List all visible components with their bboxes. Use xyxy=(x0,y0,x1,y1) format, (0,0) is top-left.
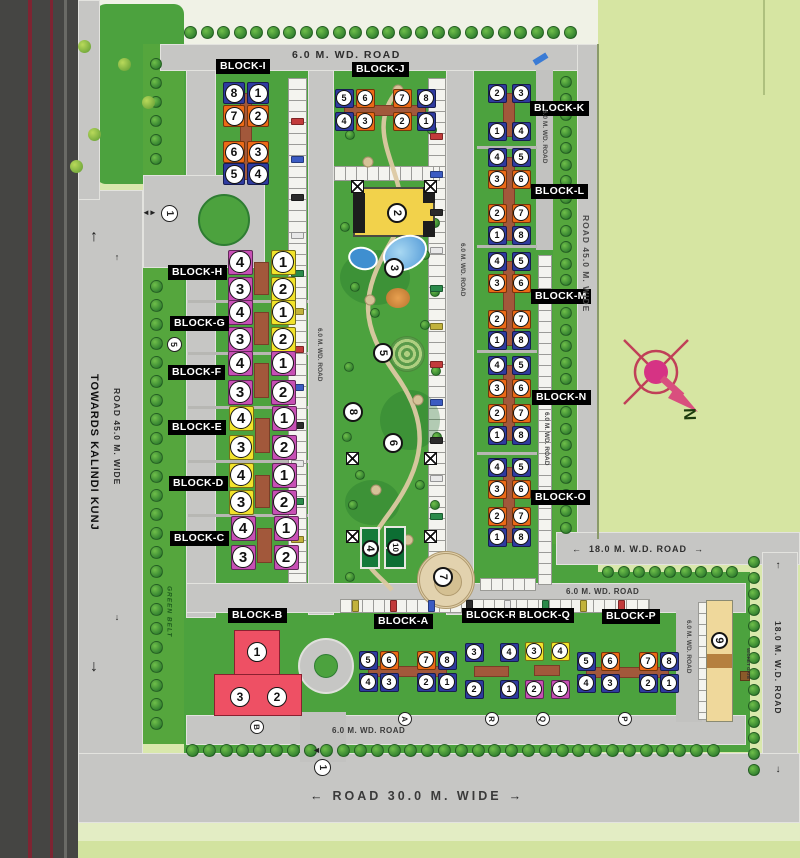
block-d-core xyxy=(255,475,270,508)
block-r-core xyxy=(474,666,509,677)
tree-icon xyxy=(748,588,760,600)
unit-circle-l-1: 1 xyxy=(489,227,505,243)
unit-circle-p-4: 4 xyxy=(578,675,594,691)
west-roundabout-island xyxy=(198,194,250,246)
unit-circle-d-4: 4 xyxy=(230,464,252,486)
bottom-margin-band-1 xyxy=(78,822,800,841)
site-plan-map: 6.0 M. WD. ROAD ↑ TOWARDS KALINDI KUNJ ↓… xyxy=(0,0,800,858)
unit-circle-g-4: 4 xyxy=(229,301,251,323)
unit-circle-l-2: 2 xyxy=(489,205,505,221)
tree-icon xyxy=(560,159,572,171)
utility-box-icon xyxy=(424,180,437,193)
tree-icon xyxy=(711,566,723,578)
unit-circle-p-6: 6 xyxy=(602,653,618,669)
unit-circle-j-2: 2 xyxy=(394,113,410,129)
knot-garden xyxy=(389,336,425,372)
unit-circle-a-1: 1 xyxy=(439,674,455,690)
road18-horizontal-label: ← 18.0 M. W.D. ROAD → xyxy=(572,544,704,554)
unit-circle-h-1: 1 xyxy=(272,251,294,273)
arrow-left-icon: ← xyxy=(310,789,326,803)
tree-icon xyxy=(690,744,703,757)
car-icon xyxy=(430,133,443,140)
block-label-e: BLOCK-E xyxy=(168,420,226,435)
tree-icon xyxy=(350,282,360,292)
wd6-near-p-text: 6.0 M. WD. ROAD xyxy=(685,620,692,673)
tree-icon xyxy=(355,470,365,480)
unit-circle-n-5: 5 xyxy=(513,357,529,373)
car-icon xyxy=(390,600,397,612)
block-label-j: BLOCK-J xyxy=(352,62,409,77)
unit-circle-p-8: 8 xyxy=(661,653,677,669)
tree-icon xyxy=(522,744,535,757)
arrow-right-icon: → xyxy=(509,789,525,803)
tree-icon xyxy=(283,26,296,39)
unit-circle-o-2: 2 xyxy=(489,508,505,524)
tree-icon xyxy=(560,258,572,270)
unit-circle-i-2: 2 xyxy=(249,107,268,126)
arrow-up-icon: ↑ xyxy=(776,560,781,571)
unit-circle-l-6: 6 xyxy=(513,171,529,187)
unit-circle-c-3: 3 xyxy=(232,546,254,568)
unit-circle-a-4: 4 xyxy=(360,674,376,690)
tree-icon xyxy=(560,373,572,385)
unit-circle-k-1: 1 xyxy=(489,123,505,139)
unit-circle-l-3: 3 xyxy=(489,171,505,187)
wicket-gate-text: WICKET GATE xyxy=(746,648,751,679)
unit-circle-g-2: 2 xyxy=(272,328,294,350)
road45-right-label: ROAD 45.0 M. WIDE xyxy=(578,215,594,420)
wd6-south-west-text: 6.0 M. WD. ROAD xyxy=(332,726,405,735)
unit-circle-b-2: 2 xyxy=(267,687,287,707)
tree-icon xyxy=(186,744,199,757)
tree-icon xyxy=(250,26,263,39)
unit-circle-f-1: 1 xyxy=(272,352,294,374)
tree-icon xyxy=(354,744,367,757)
unit-circle-c-1: 1 xyxy=(275,517,297,539)
bush-icon xyxy=(70,160,83,173)
car-icon xyxy=(430,361,443,368)
unit-circle-l-5: 5 xyxy=(513,149,529,165)
tree-icon xyxy=(481,26,494,39)
arrow-right-icon: → xyxy=(694,544,704,554)
car-icon xyxy=(352,600,359,612)
wd6-near-k-text: 6.0 M. WD. ROAD xyxy=(541,110,548,163)
tree-icon xyxy=(399,26,412,39)
unit-circle-e-4: 4 xyxy=(230,407,252,429)
wd6-near-k-label: 6.0 M. WD. ROAD xyxy=(538,110,551,194)
arrow-down-icon: ↓ xyxy=(776,764,781,775)
tree-icon xyxy=(664,566,676,578)
tree-icon xyxy=(726,566,738,578)
car-icon xyxy=(430,323,443,330)
tree-icon xyxy=(618,566,630,578)
unit-circle-p-3: 3 xyxy=(602,675,618,691)
unit-circle-n-3: 3 xyxy=(489,380,505,396)
tree-icon xyxy=(150,679,163,692)
unit-circle-q-2: 2 xyxy=(526,681,542,697)
unit-circle-o-4: 4 xyxy=(489,459,505,475)
car-icon xyxy=(430,437,443,444)
arrow-down-icon: ↓ xyxy=(90,658,98,676)
tree-icon xyxy=(388,744,401,757)
amenity-circle-court-b: 10 xyxy=(386,538,404,556)
towards-kalindi-label: ↑ TOWARDS KALINDI KUNJ ↓ xyxy=(84,228,104,676)
unit-circle-a-6: 6 xyxy=(381,652,397,668)
tree-icon xyxy=(415,480,425,490)
unit-circle-o-7: 7 xyxy=(513,508,529,524)
tree-icon xyxy=(217,26,230,39)
tree-icon xyxy=(316,26,329,39)
unit-circle-i-5: 5 xyxy=(225,165,244,184)
unit-circle-l-7: 7 xyxy=(513,205,529,221)
tree-icon xyxy=(371,744,384,757)
unit-circle-b-3: 3 xyxy=(230,687,250,707)
top-road-label: 6.0 M. WD. ROAD xyxy=(292,49,401,61)
unit-circle-a-7: 7 xyxy=(418,652,434,668)
top-road-label-wrap: 6.0 M. WD. ROAD xyxy=(292,49,401,61)
unit-circle-j-3: 3 xyxy=(357,113,373,129)
lane-line xyxy=(477,452,537,455)
tree-icon xyxy=(150,394,163,407)
tree-icon xyxy=(150,280,163,293)
unit-circle-b-1: 1 xyxy=(247,642,267,662)
unit-circle-c-4: 4 xyxy=(232,517,254,539)
north-compass: N xyxy=(612,328,716,424)
tree-icon xyxy=(203,744,216,757)
wd6-west-of-towers-label: 6.0 M. WD. ROAD xyxy=(456,243,469,327)
block-label-r: BLOCK-R xyxy=(462,608,521,623)
unit-circle-h-3: 3 xyxy=(229,278,251,300)
road45-left-text: ROAD 45.0 M. WIDE xyxy=(112,388,122,485)
tree-icon xyxy=(560,208,572,220)
unit-circle-i-3: 3 xyxy=(249,143,268,162)
unit-circle-o-5: 5 xyxy=(513,459,529,475)
tree-icon xyxy=(430,500,440,510)
unit-circle-p-5: 5 xyxy=(578,653,594,669)
tree-icon xyxy=(150,508,163,521)
unit-circle-q-1: 1 xyxy=(552,681,568,697)
tree-icon xyxy=(349,26,362,39)
bush-icon xyxy=(78,40,91,53)
north-letter: N xyxy=(680,408,699,421)
tree-icon xyxy=(748,572,760,584)
tree-icon xyxy=(649,566,661,578)
block-label-g: BLOCK-G xyxy=(170,316,229,331)
block-label-b: BLOCK-B xyxy=(228,608,287,623)
unit-circle-r-4: 4 xyxy=(501,644,517,660)
tree-icon xyxy=(560,307,572,319)
unit-circle-j-6: 6 xyxy=(357,90,373,106)
tree-icon xyxy=(560,522,572,534)
unit-circle-m-6: 6 xyxy=(513,275,529,291)
car-icon xyxy=(430,513,443,520)
green-belt-text: GREEN BELT xyxy=(166,586,173,637)
tree-icon xyxy=(150,432,163,445)
block-label-c: BLOCK-C xyxy=(170,531,229,546)
site-east-wall xyxy=(597,44,599,539)
tree-icon xyxy=(560,340,572,352)
south-gate-number: 1 xyxy=(317,765,328,771)
tree-icon xyxy=(150,489,163,502)
unit-circle-h-2: 2 xyxy=(272,278,294,300)
east-open-field xyxy=(598,0,800,545)
road18-vertical-text: 18.0 M. W.D. ROAD xyxy=(773,621,783,715)
tree-icon xyxy=(455,744,468,757)
railway-line-1 xyxy=(28,0,32,858)
south-gate-arrow-icon: ◄ xyxy=(312,745,321,755)
green-belt-label: GREEN BELT xyxy=(162,586,176,656)
unit-circle-r-2: 2 xyxy=(466,681,482,697)
tree-icon xyxy=(560,324,572,336)
bottom-margin-band-2 xyxy=(78,841,800,858)
tree-icon xyxy=(748,748,760,760)
unit-circle-p-1: 1 xyxy=(661,675,677,691)
tree-icon xyxy=(560,439,572,451)
tree-icon xyxy=(267,26,280,39)
tree-icon xyxy=(150,299,163,312)
tree-icon xyxy=(560,357,572,369)
tree-icon xyxy=(560,142,572,154)
tree-icon xyxy=(150,318,163,331)
tree-icon xyxy=(348,500,358,510)
wd6-south-mid-text: 6.0 M. WD. ROAD xyxy=(566,587,639,596)
tree-icon xyxy=(560,76,572,88)
car-icon xyxy=(580,600,587,612)
unit-circle-k-4: 4 xyxy=(513,123,529,139)
tree-icon xyxy=(560,456,572,468)
car-icon xyxy=(428,600,435,612)
tree-icon xyxy=(448,26,461,39)
tree-icon xyxy=(150,356,163,369)
tree-icon xyxy=(560,126,572,138)
unit-circle-a-5: 5 xyxy=(360,652,376,668)
amenity-circle-tower-9: 9 xyxy=(710,631,728,649)
unit-circle-k-2: 2 xyxy=(489,85,505,101)
bush-icon xyxy=(88,128,101,141)
car-icon xyxy=(291,156,304,163)
tree-icon xyxy=(539,744,552,757)
tree-icon xyxy=(531,26,544,39)
block-q-core xyxy=(534,665,560,676)
tree-icon xyxy=(415,26,428,39)
block-label-a: BLOCK-A xyxy=(374,614,433,629)
unit-circle-m-8: 8 xyxy=(513,332,529,348)
tree-icon xyxy=(150,337,163,350)
unit-circle-i-1: 1 xyxy=(249,84,268,103)
unit-circle-i-4: 4 xyxy=(249,165,268,184)
block-label-p: BLOCK-P xyxy=(602,609,660,624)
unit-circle-m-2: 2 xyxy=(489,311,505,327)
wd6-west-of-towers-text: 6.0 M. WD. ROAD xyxy=(459,243,466,296)
unit-circle-k-3: 3 xyxy=(513,85,529,101)
unit-circle-m-5: 5 xyxy=(513,253,529,269)
tree-icon xyxy=(748,716,760,728)
bottom-main-road xyxy=(78,753,800,823)
car-icon xyxy=(430,285,443,292)
arrow-up-icon: ↑ xyxy=(115,252,120,262)
tree-icon xyxy=(438,744,451,757)
unit-circle-j-8: 8 xyxy=(418,90,434,106)
unit-circle-p-2: 2 xyxy=(640,675,656,691)
bush-icon xyxy=(142,96,155,109)
tree-icon xyxy=(560,406,572,418)
tree-icon xyxy=(680,566,692,578)
tree-icon xyxy=(150,717,163,730)
block-label-f: BLOCK-F xyxy=(168,365,225,380)
tree-icon xyxy=(564,26,577,39)
amenity-circle-court-a: 4 xyxy=(361,539,379,557)
tree-icon xyxy=(345,572,355,582)
unit-circle-j-5: 5 xyxy=(336,90,352,106)
unit-circle-n-1: 1 xyxy=(489,427,505,443)
lane-line xyxy=(477,245,537,248)
tree-icon xyxy=(472,744,485,757)
tree-icon xyxy=(150,660,163,673)
road30-bottom-text: ROAD 30.0 M. WIDE xyxy=(333,789,502,803)
unit-circle-o-3: 3 xyxy=(489,481,505,497)
block-b-building-bottom xyxy=(214,674,302,716)
car-icon xyxy=(291,118,304,125)
towards-kalindi-text: TOWARDS KALINDI KUNJ xyxy=(88,374,100,531)
tree-icon xyxy=(370,308,380,318)
car-icon xyxy=(291,194,304,201)
tree-icon xyxy=(748,556,760,568)
road45-right-text: ROAD 45.0 M. WIDE xyxy=(581,215,591,312)
tree-icon xyxy=(150,58,162,70)
unit-circle-d-2: 2 xyxy=(273,491,295,513)
tree-icon xyxy=(695,566,707,578)
road18-vertical-label: ↑ 18.0 M. W.D. ROAD ↓ xyxy=(770,560,786,775)
unit-circle-f-2: 2 xyxy=(272,381,294,403)
tree-icon xyxy=(748,636,760,648)
car-icon xyxy=(430,475,443,482)
tree-icon xyxy=(201,26,214,39)
unit-circle-m-1: 1 xyxy=(489,332,505,348)
unit-circle-a-8: 8 xyxy=(439,652,455,668)
unit-circle-m-3: 3 xyxy=(489,275,505,291)
tree-icon xyxy=(184,26,197,39)
wd6-park-text: 6.0 M. WD. ROAD xyxy=(316,328,323,381)
tree-icon xyxy=(150,115,162,127)
block-e-core xyxy=(255,418,270,453)
tower-9-building xyxy=(706,600,733,722)
utility-box-icon xyxy=(351,180,364,193)
tree-icon xyxy=(150,153,162,165)
tree-icon xyxy=(748,700,760,712)
tree-icon xyxy=(344,362,354,372)
unit-circle-i-7: 7 xyxy=(225,107,244,126)
car-icon xyxy=(430,247,443,254)
tree-icon xyxy=(270,744,283,757)
block-label-i: BLOCK-I xyxy=(216,59,270,74)
block-label-q: BLOCK-Q xyxy=(515,608,574,623)
west-gate-arrow-icon: ◄► xyxy=(142,208,156,217)
unit-circle-q-3: 3 xyxy=(526,643,542,659)
tree-icon xyxy=(560,472,572,484)
block-label-h: BLOCK-H xyxy=(168,265,227,280)
arrow-left-icon: ← xyxy=(572,544,582,554)
bush-icon xyxy=(118,58,131,71)
unit-circle-c-2: 2 xyxy=(275,546,297,568)
tree-icon xyxy=(150,375,163,388)
unit-circle-m-7: 7 xyxy=(513,311,529,327)
tree-icon xyxy=(514,26,527,39)
unit-circle-h-4: 4 xyxy=(229,251,251,273)
unit-circle-j-7: 7 xyxy=(394,90,410,106)
wd6-south-west-label: 6.0 M. WD. ROAD xyxy=(332,726,405,735)
car-icon xyxy=(430,399,443,406)
utility-box-icon xyxy=(346,530,359,543)
block-c-core xyxy=(257,528,272,563)
tree-icon xyxy=(498,26,511,39)
unit-circle-g-1: 1 xyxy=(272,301,294,323)
unit-circle-e-2: 2 xyxy=(273,436,295,458)
unit-circle-a-2: 2 xyxy=(418,674,434,690)
utility-box-icon xyxy=(424,452,437,465)
tree-icon xyxy=(342,432,352,442)
tree-icon xyxy=(333,26,346,39)
road30-bottom-label: ← ROAD 30.0 M. WIDE → xyxy=(310,789,524,803)
tree-icon xyxy=(547,26,560,39)
park-east-road xyxy=(446,70,474,615)
arrow-up-icon: ↑ xyxy=(90,228,98,246)
tree-icon xyxy=(287,744,300,757)
tree-icon xyxy=(150,451,163,464)
unit-circle-l-8: 8 xyxy=(513,227,529,243)
unit-circle-q-4: 4 xyxy=(552,643,568,659)
tree-icon xyxy=(432,26,445,39)
tree-icon xyxy=(150,565,163,578)
utility-box-icon xyxy=(346,452,359,465)
tree-icon xyxy=(748,604,760,616)
unit-circle-o-8: 8 xyxy=(513,529,529,545)
tree-icon xyxy=(560,241,572,253)
south-roundabout-island xyxy=(314,654,338,678)
tree-icon xyxy=(748,764,760,776)
wicket-gate-label: WICKET GATE xyxy=(744,648,753,680)
tree-icon xyxy=(560,225,572,237)
tree-icon xyxy=(465,26,478,39)
tree-icon xyxy=(633,566,645,578)
unit-circle-d-3: 3 xyxy=(230,491,252,513)
unit-circle-i-8: 8 xyxy=(225,84,244,103)
car-icon xyxy=(430,171,443,178)
tree-icon xyxy=(640,744,653,757)
unit-circle-f-3: 3 xyxy=(229,381,251,403)
railway-line-3 xyxy=(64,0,67,858)
tree-icon xyxy=(340,222,350,232)
utility-box-icon xyxy=(424,530,437,543)
tree-icon xyxy=(560,423,572,435)
lane-line xyxy=(477,350,537,353)
tree-icon xyxy=(707,744,720,757)
playground xyxy=(386,288,410,308)
unit-circle-p-7: 7 xyxy=(640,653,656,669)
wd6-near-p-label: 6.0 M. WD. ROAD xyxy=(682,620,695,704)
unit-circle-i-6: 6 xyxy=(225,143,244,162)
unit-circle-e-3: 3 xyxy=(230,436,252,458)
block-g-core xyxy=(254,312,269,345)
unit-circle-j-1: 1 xyxy=(418,113,434,129)
tree-icon xyxy=(150,134,162,146)
tree-icon xyxy=(560,274,572,286)
tree-icon xyxy=(150,77,162,89)
tree-icon xyxy=(748,684,760,696)
tree-icon xyxy=(748,620,760,632)
unit-circle-e-1: 1 xyxy=(273,407,295,429)
unit-circle-n-2: 2 xyxy=(489,405,505,421)
road45-left-label: ↑ ROAD 45.0 M. WIDE ↓ xyxy=(109,252,125,622)
